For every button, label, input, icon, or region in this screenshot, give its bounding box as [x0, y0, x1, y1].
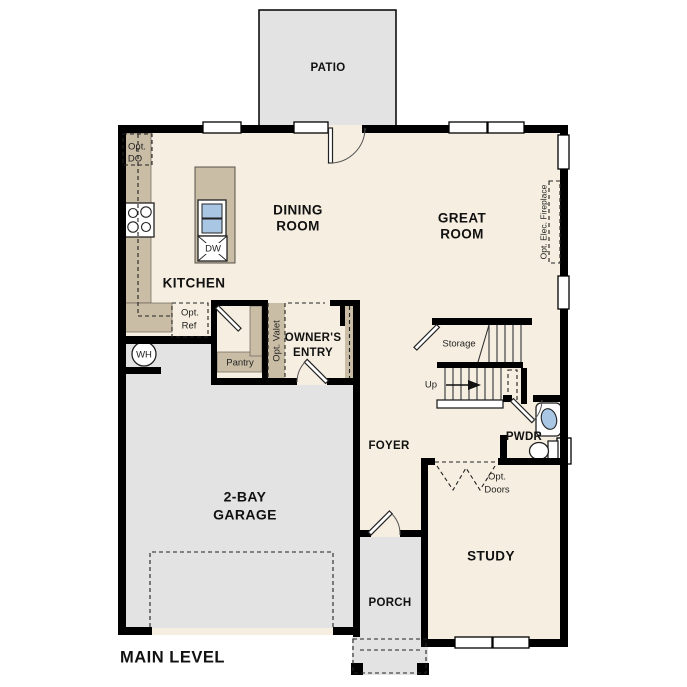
dining-room-label: ROOM: [276, 219, 320, 234]
window: [449, 122, 487, 133]
opt-ref-label: Ref: [182, 321, 197, 332]
opt-valet-label: Opt. Valet: [272, 320, 283, 362]
opt-doors-label: Doors: [484, 485, 510, 496]
kitchen-label: KITCHEN: [163, 276, 226, 291]
floor-plan: DW WH: [0, 0, 687, 687]
plan-title: MAIN LEVEL: [120, 648, 225, 666]
window: [455, 637, 492, 648]
kitchen-counter-corner: [125, 303, 172, 332]
opt-fireplace-label: Opt. Elec. Fireplace: [538, 184, 548, 259]
study-label: STUDY: [467, 549, 515, 564]
porch-floor: [360, 537, 421, 638]
burner: [128, 222, 138, 232]
sink-basin: [202, 204, 222, 218]
foyer-label: FOYER: [368, 440, 410, 452]
porch-label: PORCH: [368, 597, 411, 609]
great-room-label: GREAT: [438, 211, 487, 226]
opt-ref-label: Opt.: [181, 308, 199, 319]
pantry-label: Pantry: [226, 358, 254, 369]
storage-label: Storage: [442, 339, 475, 350]
dining-room-label: DINING: [273, 203, 323, 218]
toilet-bowl: [530, 443, 549, 460]
dishwasher-label: DW: [205, 244, 221, 255]
window: [493, 637, 529, 648]
water-heater-label: WH: [136, 350, 152, 361]
powder-label: PWDR: [506, 431, 543, 443]
exterior-ground: [421, 647, 571, 687]
garage-floor: [125, 344, 353, 628]
owners-entry-label: OWNER'S: [285, 332, 342, 344]
opt-do-label: DO: [128, 154, 142, 165]
up-label: Up: [425, 380, 437, 391]
patio-door-threshold: [294, 122, 328, 133]
pantry-shelf-side: [250, 306, 262, 356]
garage-label: GARAGE: [213, 507, 277, 523]
patio-door: [329, 128, 333, 163]
great-room-label: ROOM: [440, 227, 484, 242]
opt-doors-label: Opt.: [488, 472, 506, 483]
owners-entry-label: ENTRY: [293, 347, 333, 359]
burner: [129, 209, 138, 218]
burner: [142, 223, 151, 232]
window: [558, 135, 569, 169]
garage-label: 2-BAY: [224, 489, 267, 505]
window: [203, 122, 241, 133]
opt-do-label: Opt.: [128, 142, 146, 153]
sink-basin: [202, 219, 222, 233]
stair-landing: [437, 400, 503, 408]
window: [488, 122, 524, 133]
patio-label: PATIO: [311, 62, 346, 74]
floor-plan-drawing: DW WH: [0, 0, 687, 687]
porch-steps: [352, 637, 428, 675]
burner: [141, 207, 151, 217]
window: [558, 276, 569, 309]
